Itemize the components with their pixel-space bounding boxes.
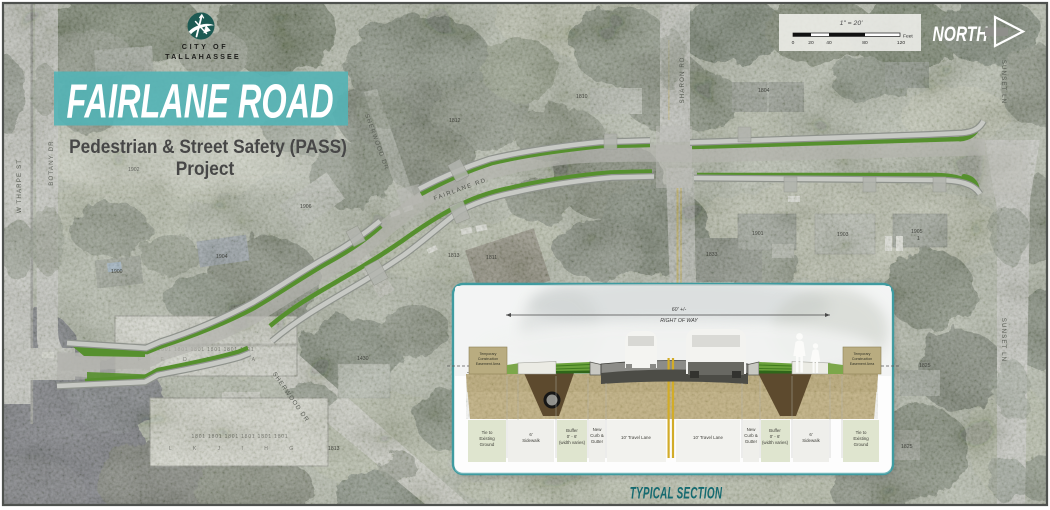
svg-text:120: 120 bbox=[897, 40, 905, 46]
svg-text:Easement Area: Easement Area bbox=[850, 362, 875, 366]
svg-text:1833: 1833 bbox=[706, 252, 718, 258]
svg-text:1813: 1813 bbox=[328, 446, 340, 452]
svg-text:Project: Project bbox=[176, 157, 234, 179]
svg-text:0' - 6': 0' - 6' bbox=[567, 434, 578, 439]
svg-text:0' - 6': 0' - 6' bbox=[770, 434, 781, 439]
svg-text:W THARPE ST: W THARPE ST bbox=[16, 159, 23, 213]
svg-text:1903: 1903 bbox=[837, 232, 849, 238]
svg-text:Tie to: Tie to bbox=[856, 430, 867, 435]
svg-text:1900: 1900 bbox=[111, 269, 123, 275]
svg-text:Gutter: Gutter bbox=[591, 439, 604, 444]
svg-text:RIGHT OF WAY: RIGHT OF WAY bbox=[660, 318, 698, 324]
svg-text:Construction: Construction bbox=[478, 357, 498, 361]
svg-text:1811: 1811 bbox=[486, 255, 497, 261]
svg-text:(width varies): (width varies) bbox=[762, 440, 789, 445]
svg-text:Pedestrian & Street Safety (PA: Pedestrian & Street Safety (PASS) bbox=[69, 135, 347, 157]
svg-text:1812: 1812 bbox=[449, 118, 461, 124]
svg-text:Sidewalk: Sidewalk bbox=[522, 438, 540, 443]
svg-text:60' +/-: 60' +/- bbox=[672, 307, 687, 313]
svg-text:Construction: Construction bbox=[852, 357, 872, 361]
svg-text:1906: 1906 bbox=[300, 204, 312, 210]
svg-text:80: 80 bbox=[862, 40, 868, 46]
svg-text:1430: 1430 bbox=[357, 356, 369, 362]
svg-text:1901: 1901 bbox=[752, 231, 764, 237]
svg-text:1810: 1810 bbox=[576, 94, 588, 100]
svg-text:New: New bbox=[747, 427, 757, 432]
svg-text:1: 1 bbox=[917, 236, 920, 242]
svg-text:Ground: Ground bbox=[854, 442, 869, 447]
svg-text:1" = 20': 1" = 20' bbox=[840, 20, 863, 27]
svg-text:TYPICAL SECTION: TYPICAL SECTION bbox=[630, 484, 723, 502]
svg-text:Temporary: Temporary bbox=[480, 352, 497, 356]
svg-text:FAIRLANE ROAD: FAIRLANE ROAD bbox=[66, 74, 333, 128]
svg-text:40: 40 bbox=[826, 40, 832, 46]
svg-text:Easement Area: Easement Area bbox=[476, 362, 501, 366]
svg-text:10' Travel Lane: 10' Travel Lane bbox=[621, 435, 651, 440]
svg-text:New: New bbox=[593, 427, 603, 432]
svg-text:CITY OF: CITY OF bbox=[182, 42, 228, 51]
svg-text:SUNSET LN: SUNSET LN bbox=[1000, 318, 1007, 363]
svg-text:Gutter: Gutter bbox=[745, 439, 758, 444]
svg-text:Tie to: Tie to bbox=[482, 430, 493, 435]
svg-text:1825: 1825 bbox=[901, 444, 913, 450]
svg-text:1813: 1813 bbox=[448, 253, 460, 259]
svg-text:Curb &: Curb & bbox=[590, 433, 604, 438]
svg-text:Curb &: Curb & bbox=[744, 433, 758, 438]
svg-text:Existing: Existing bbox=[479, 436, 495, 441]
svg-text:Sidewalk: Sidewalk bbox=[802, 438, 820, 443]
svg-text:1905: 1905 bbox=[911, 229, 923, 235]
svg-text:SUNSET LN: SUNSET LN bbox=[1000, 60, 1007, 105]
svg-text:SHARON RD: SHARON RD bbox=[679, 56, 686, 103]
svg-text:NORTH: NORTH bbox=[933, 22, 989, 46]
svg-text:Existing: Existing bbox=[853, 436, 869, 441]
svg-text:10' Travel Lane: 10' Travel Lane bbox=[693, 435, 723, 440]
svg-text:Feet: Feet bbox=[903, 34, 913, 40]
svg-text:20: 20 bbox=[808, 40, 814, 46]
svg-text:Buffer: Buffer bbox=[769, 428, 781, 433]
svg-text:0: 0 bbox=[792, 40, 795, 46]
svg-text:Temporary: Temporary bbox=[854, 352, 871, 356]
svg-text:1904: 1904 bbox=[216, 254, 228, 260]
svg-text:Ground: Ground bbox=[480, 442, 495, 447]
svg-text:TALLAHASSEE: TALLAHASSEE bbox=[165, 52, 241, 61]
svg-text:6': 6' bbox=[529, 432, 532, 437]
svg-text:1825: 1825 bbox=[919, 363, 931, 369]
svg-text:6': 6' bbox=[809, 432, 812, 437]
svg-text:(width varies): (width varies) bbox=[559, 440, 586, 445]
svg-text:1804: 1804 bbox=[758, 88, 770, 94]
svg-text:Buffer: Buffer bbox=[566, 428, 578, 433]
